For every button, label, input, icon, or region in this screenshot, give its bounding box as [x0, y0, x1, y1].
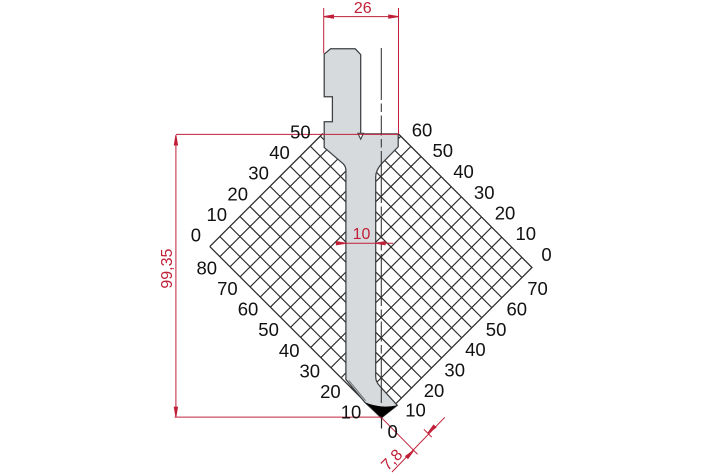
- svg-text:10: 10: [516, 223, 537, 244]
- svg-text:99,35: 99,35: [159, 248, 176, 288]
- svg-text:26: 26: [354, 0, 372, 17]
- svg-text:50: 50: [258, 319, 279, 340]
- svg-text:50: 50: [290, 122, 311, 143]
- svg-text:20: 20: [495, 203, 516, 224]
- svg-text:30: 30: [300, 360, 321, 381]
- svg-text:10: 10: [405, 399, 426, 420]
- svg-text:0: 0: [387, 421, 397, 442]
- svg-text:60: 60: [412, 120, 433, 141]
- svg-text:40: 40: [269, 142, 290, 163]
- svg-text:40: 40: [453, 161, 474, 182]
- svg-text:30: 30: [444, 360, 465, 381]
- svg-text:0: 0: [541, 244, 551, 265]
- svg-text:50: 50: [433, 140, 454, 161]
- svg-text:10: 10: [341, 402, 362, 423]
- svg-text:70: 70: [527, 278, 548, 299]
- svg-text:30: 30: [474, 182, 495, 203]
- svg-text:40: 40: [465, 339, 486, 360]
- svg-text:60: 60: [238, 299, 259, 320]
- svg-text:10: 10: [207, 204, 228, 225]
- svg-text:20: 20: [227, 183, 248, 204]
- svg-text:0: 0: [191, 225, 201, 246]
- svg-text:50: 50: [486, 319, 507, 340]
- svg-text:40: 40: [279, 340, 300, 361]
- svg-text:80: 80: [197, 257, 218, 278]
- svg-text:20: 20: [320, 381, 341, 402]
- svg-text:20: 20: [424, 380, 445, 401]
- svg-text:30: 30: [248, 163, 269, 184]
- svg-text:7,8: 7,8: [378, 446, 406, 474]
- svg-text:70: 70: [217, 278, 238, 299]
- svg-text:60: 60: [507, 298, 528, 319]
- svg-text:10: 10: [353, 226, 371, 243]
